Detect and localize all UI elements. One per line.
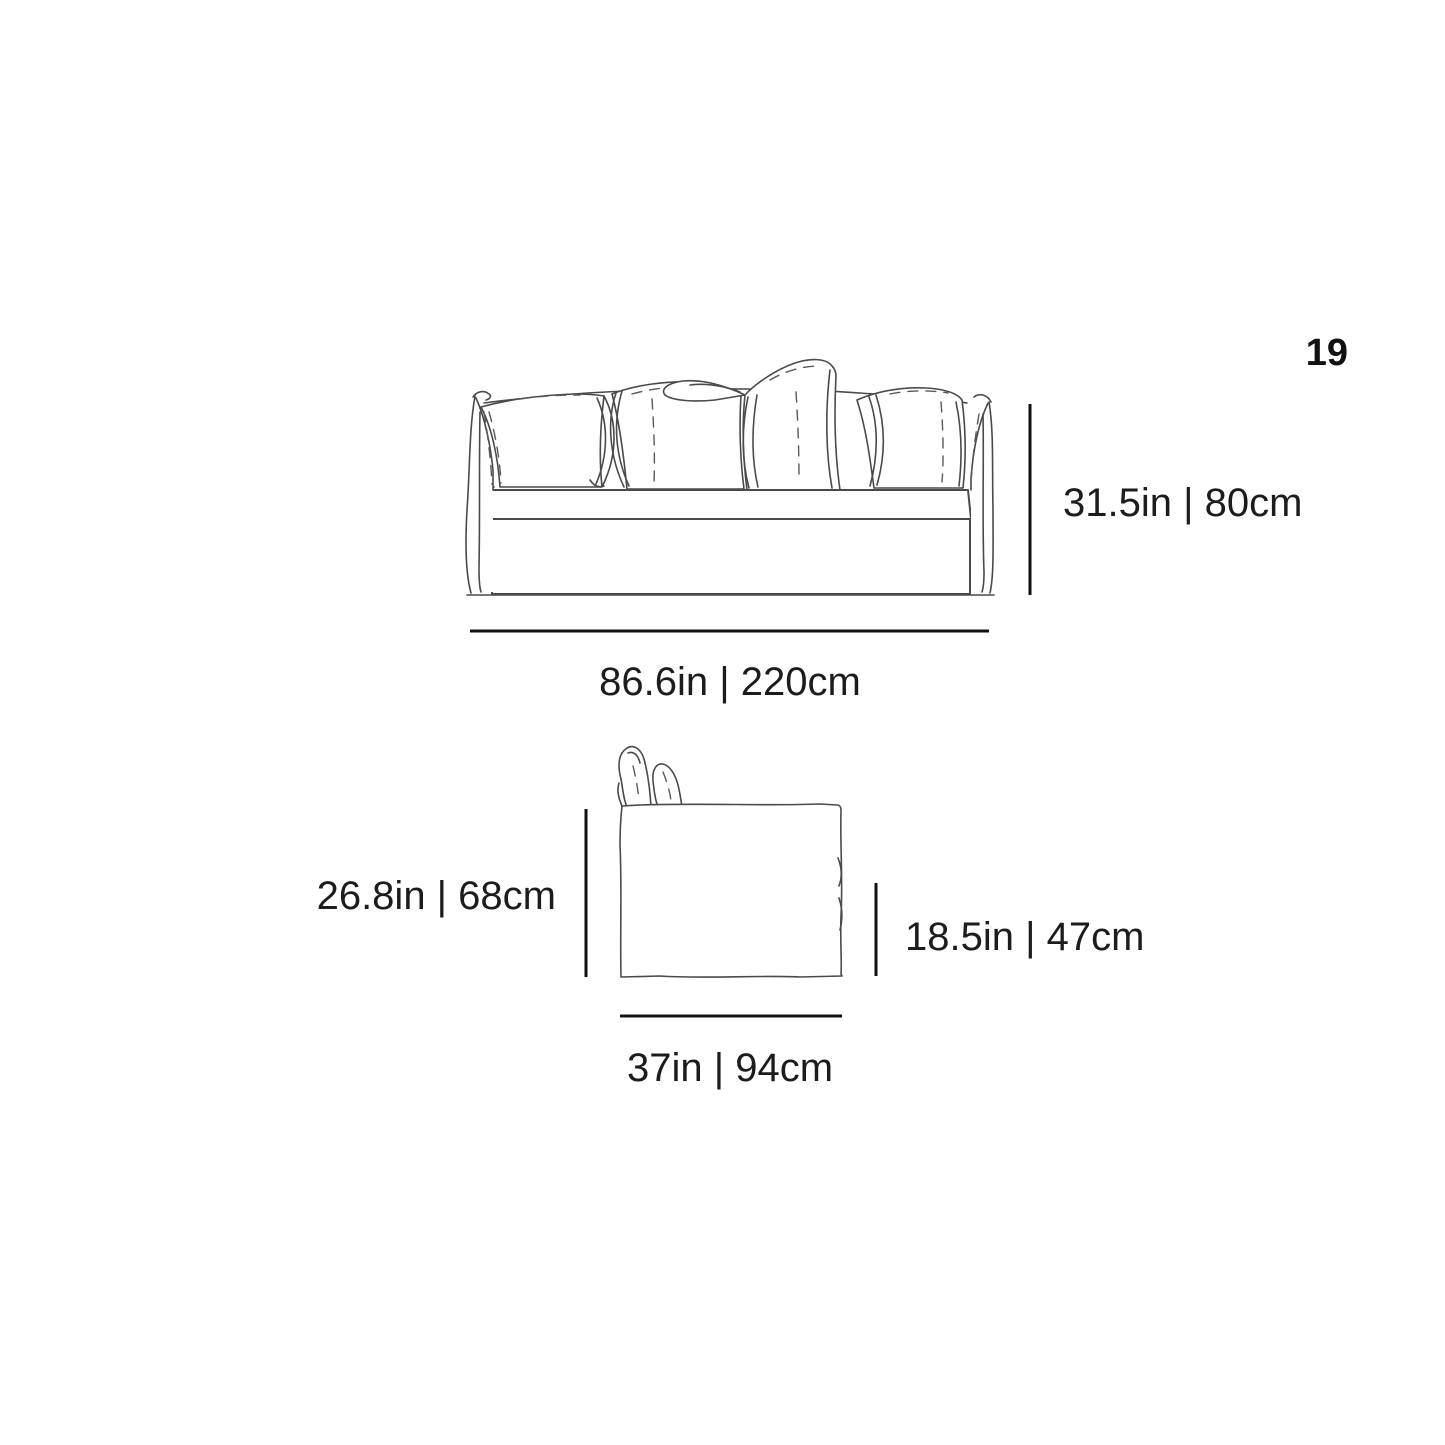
side-body-outline bbox=[620, 804, 842, 977]
seat-cushion bbox=[483, 490, 971, 519]
dimension-drawing: 31.5in | 80cm 86.6in | 220cm 26.8in | 68… bbox=[0, 0, 1445, 1445]
front-width-dimension-label: 86.6in | 220cm bbox=[599, 660, 861, 704]
side-pillow-tips bbox=[619, 747, 682, 807]
sofa-side-elevation: 26.8in | 68cm 18.5in | 47cm 37in | 94cm bbox=[317, 747, 1145, 1090]
side-height-dimension-label: 26.8in | 68cm bbox=[317, 874, 556, 918]
side-body-corner-curl bbox=[618, 783, 622, 806]
side-depth-dimension-label: 37in | 94cm bbox=[627, 1046, 833, 1090]
side-pillow-tip-1 bbox=[619, 747, 651, 807]
right-arm-drape bbox=[971, 395, 993, 593]
front-height-dimension-label: 31.5in | 80cm bbox=[1063, 481, 1302, 525]
back-pillow-1 bbox=[481, 394, 614, 488]
right-arm-top-curl bbox=[974, 395, 991, 402]
back-pillow-4 bbox=[857, 388, 965, 488]
sofa-base bbox=[492, 519, 970, 594]
sofa-front-elevation: 31.5in | 80cm 86.6in | 220cm bbox=[466, 360, 1302, 704]
side-seat-height-dimension-label: 18.5in | 47cm bbox=[905, 915, 1144, 959]
spec-sheet-page: 31.5in | 80cm 86.6in | 220cm 26.8in | 68… bbox=[0, 0, 1445, 1445]
page-number: 19 bbox=[1306, 332, 1348, 374]
side-pillow-tip-2 bbox=[653, 764, 682, 807]
right-arm-fill bbox=[971, 402, 993, 592]
pillow-1-outline bbox=[481, 394, 604, 487]
